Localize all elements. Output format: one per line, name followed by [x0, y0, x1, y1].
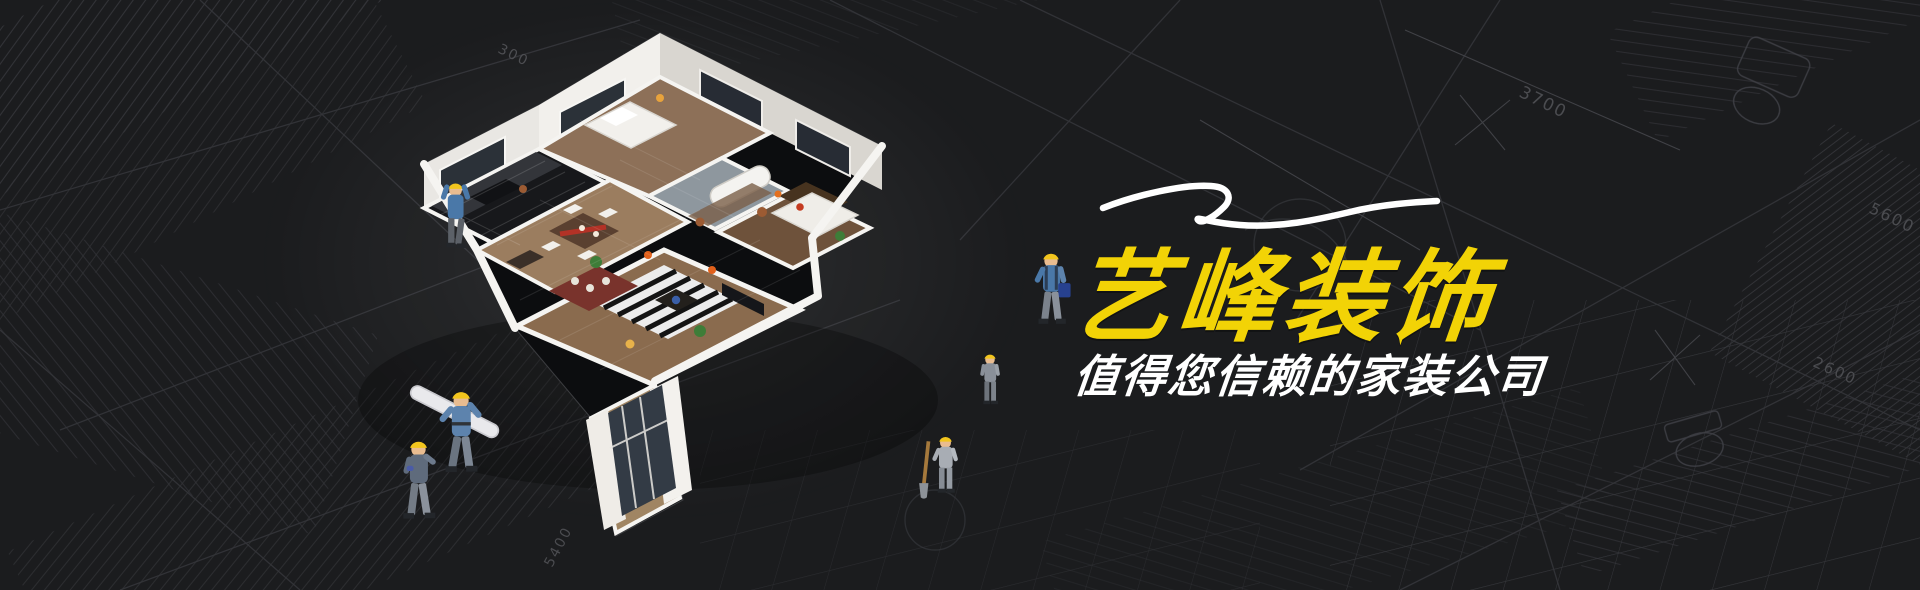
worker-near-title: [1034, 254, 1071, 324]
apartment-illustration: [0, 0, 1920, 590]
hero-banner: 300 3700 5600 2600 5400: [0, 0, 1920, 590]
worker-with-shovel: [919, 437, 958, 499]
worker-standing: [980, 355, 1000, 405]
